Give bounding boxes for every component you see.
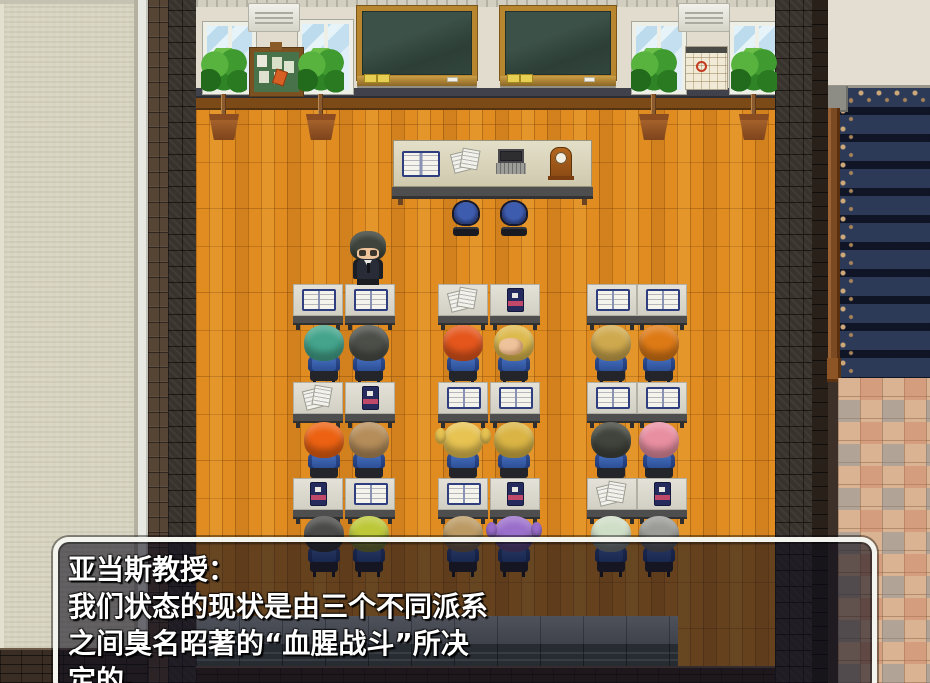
student-hair — [494, 422, 534, 458]
air-conditioner-icon — [678, 3, 730, 32]
air-conditioner-icon — [248, 3, 300, 32]
stair-railing — [828, 108, 840, 358]
open-book-icon — [447, 387, 481, 409]
student-desk — [345, 284, 395, 316]
student-sprite — [302, 422, 346, 484]
open-book-icon — [354, 483, 388, 505]
student-sprite — [492, 325, 536, 387]
student-desk — [637, 382, 687, 414]
student-desk — [587, 382, 637, 414]
student-hair — [591, 422, 631, 458]
student-hair — [304, 325, 344, 361]
chalk-icon — [584, 77, 595, 82]
papers-icon — [449, 288, 477, 310]
calendar-icon — [685, 46, 728, 90]
open-book-icon — [646, 387, 680, 409]
dialog-text-line-3: 定的。 — [68, 662, 862, 683]
plant-pot — [209, 114, 239, 140]
student-desk — [345, 478, 395, 510]
potted-plant — [298, 48, 344, 140]
closed-book-icon — [507, 288, 524, 312]
open-book-icon — [596, 289, 630, 311]
professor-suit — [353, 259, 383, 279]
student-desk — [293, 478, 343, 510]
laptop-icon — [496, 149, 526, 175]
student-sprite — [492, 422, 536, 484]
plant-leaves — [731, 48, 777, 100]
student-hair — [639, 422, 679, 458]
blackboard-2 — [500, 6, 616, 80]
potted-plant — [631, 48, 677, 140]
student-hair — [639, 325, 679, 361]
student-desk — [637, 478, 687, 510]
closed-book-icon — [362, 386, 379, 410]
student-desk — [490, 382, 540, 414]
student-hair — [494, 325, 534, 361]
open-book-icon — [354, 289, 388, 311]
student-desk — [293, 382, 343, 414]
office-chair — [452, 202, 480, 236]
student-desk — [587, 478, 637, 510]
dialog-text-line-1: 我们状态的现状是由三个不同派系 — [68, 588, 862, 625]
bulletin-board — [250, 48, 303, 96]
open-book-icon — [596, 387, 630, 409]
plant-pot — [639, 114, 669, 140]
student-desk — [345, 382, 395, 414]
pinned-note-icon — [272, 69, 288, 87]
dialog-text-line-2: 之间臭名昭著的“血腥战斗”所决 — [68, 625, 862, 662]
plant-pot — [306, 114, 336, 140]
open-book-icon — [402, 151, 440, 177]
student-sprite — [637, 422, 681, 484]
papers-icon — [452, 149, 482, 175]
student-desk — [490, 284, 540, 316]
student-sprite — [637, 325, 681, 387]
hallway-wall — [828, 0, 930, 88]
student-sprite — [589, 325, 633, 387]
student-desk — [490, 478, 540, 510]
eraser-icon — [364, 74, 377, 83]
student-desk — [637, 284, 687, 316]
closed-book-icon — [310, 482, 327, 506]
student-sprite — [302, 325, 346, 387]
teacher-desk — [393, 140, 592, 187]
student-desk — [293, 284, 343, 316]
potted-plant — [731, 48, 777, 140]
student-hair — [443, 422, 483, 458]
professor-legs — [357, 279, 379, 285]
professor-face-glasses — [357, 248, 379, 259]
open-book-icon — [499, 387, 533, 409]
plant-pot — [739, 114, 769, 140]
eraser-icon — [520, 74, 533, 83]
eraser-icon — [377, 74, 390, 83]
dialog-speaker: 亚当斯教授： — [68, 551, 862, 588]
clock-icon — [550, 147, 572, 179]
student-hair — [349, 422, 389, 458]
student-desk — [438, 284, 488, 316]
dialog-box[interactable]: 亚当斯教授： 我们状态的现状是由三个不同派系 之间臭名昭著的“血腥战斗”所决 定… — [53, 537, 877, 683]
open-book-icon — [447, 483, 481, 505]
blackboard-1 — [357, 6, 477, 80]
student-hair — [304, 422, 344, 458]
student-desk — [587, 284, 637, 316]
student-sprite — [347, 325, 391, 387]
plant-leaves — [201, 48, 247, 100]
student-sprite — [347, 422, 391, 484]
student-hair — [443, 325, 483, 361]
game-viewport: 亚当斯教授： 我们状态的现状是由三个不同派系 之间臭名昭著的“血腥战斗”所决 定… — [0, 0, 930, 683]
student-sprite — [441, 325, 485, 387]
student-desk — [438, 382, 488, 414]
plant-leaves — [298, 48, 344, 100]
student-hair — [349, 325, 389, 361]
student-hair — [591, 325, 631, 361]
open-book-icon — [646, 289, 680, 311]
student-sprite — [441, 422, 485, 484]
closed-book-icon — [507, 482, 524, 506]
student-sprite — [589, 422, 633, 484]
chalk-icon — [447, 77, 458, 82]
student-desk — [438, 478, 488, 510]
office-chair — [500, 202, 528, 236]
potted-plant — [201, 48, 247, 140]
papers-icon — [598, 482, 626, 504]
professor-adams-sprite[interactable] — [347, 231, 389, 285]
closed-book-icon — [654, 482, 671, 506]
open-book-icon — [302, 289, 336, 311]
eraser-icon — [507, 74, 520, 83]
plant-leaves — [631, 48, 677, 100]
papers-icon — [304, 386, 332, 408]
staircase-carpet — [838, 88, 930, 378]
